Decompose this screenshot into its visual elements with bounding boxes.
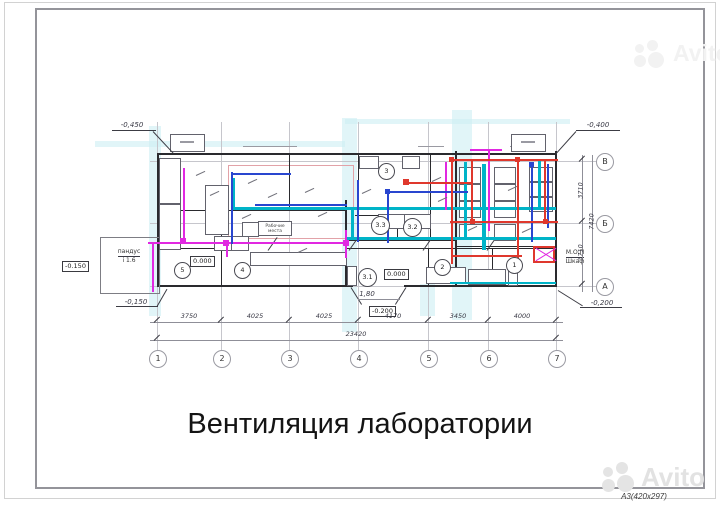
duct-red — [450, 159, 558, 161]
room-circle-3: 3 — [378, 163, 395, 180]
wall-interior — [455, 151, 457, 286]
duct-red — [450, 221, 558, 223]
duct-exhaust — [148, 242, 348, 244]
duct-supply — [482, 164, 486, 250]
level-box-lobby: 0.000 — [384, 269, 409, 280]
wall-interior — [289, 153, 290, 210]
elevation-leader — [112, 130, 156, 131]
mop-label: М.О.П Шкаф — [561, 249, 589, 265]
dim-line-total — [150, 340, 563, 341]
ramp-label: пандус i 1.6 — [104, 248, 154, 264]
damper-node — [385, 189, 390, 194]
room-circle-3-3: 3.3 — [371, 216, 390, 235]
grid-line-row-v — [150, 161, 612, 162]
watermark-top-right: Avito — [634, 36, 720, 70]
room-circle-3-2: 3.2 — [403, 218, 422, 237]
duct-red — [407, 182, 473, 184]
duct-red — [471, 159, 473, 223]
dim-segment-4: 4170 — [368, 313, 418, 320]
grid-highlight-band — [345, 119, 570, 124]
duct-red — [544, 159, 546, 223]
dim-right-segment-2: 3710 — [578, 238, 585, 268]
damper-node — [543, 219, 548, 224]
window-mark — [243, 146, 297, 147]
ramp-label-line2: i 1.6 — [122, 257, 135, 264]
canopy-box — [511, 134, 546, 152]
canopy-box-text-smudge — [521, 141, 535, 143]
dim-line-segments — [150, 322, 563, 323]
duct-red — [517, 159, 519, 264]
duct-supply — [450, 282, 556, 284]
elevation-leader — [116, 306, 158, 307]
damper-node — [529, 162, 534, 167]
ramp-label-line1: пандус — [118, 248, 141, 257]
dim-segment-6: 4000 — [497, 313, 547, 320]
wall-top — [157, 153, 556, 155]
wall-bottom-right — [404, 285, 556, 287]
duct-supply — [538, 160, 541, 208]
grid-highlight-band — [95, 141, 345, 147]
workplaces-line2: места — [268, 229, 282, 234]
cabinet — [159, 158, 181, 204]
dim-segment-2: 4025 — [230, 313, 280, 320]
room-circle-1: 1 — [506, 257, 523, 274]
room-circle-2: 2 — [434, 259, 451, 276]
window-mark — [418, 146, 444, 147]
room-circle-3-1: 3.1 — [358, 268, 377, 287]
damper-node — [515, 157, 520, 162]
ramp-outline — [100, 237, 160, 294]
wall-bottom-left — [157, 285, 353, 287]
watermark-text: Avito — [673, 40, 720, 66]
duct-exhaust — [445, 162, 447, 210]
wall-interior — [157, 210, 345, 211]
dim-segment-1: 3750 — [164, 313, 214, 320]
level-box-hall: 0.000 — [190, 256, 215, 267]
dim-right-segment-1: 3710 — [578, 176, 585, 206]
duct-blue — [255, 204, 347, 206]
damper-node — [343, 240, 349, 246]
lab-table — [494, 167, 516, 184]
axis-bubble-5: 5 — [420, 350, 438, 368]
damper-node — [403, 179, 409, 185]
room-circle-5: 5 — [174, 262, 191, 279]
damper-node — [180, 238, 186, 244]
duct-blue — [388, 191, 468, 193]
ramp-level-box: -0.150 — [62, 261, 89, 272]
duct-exhaust — [183, 168, 185, 242]
furniture-box — [347, 266, 357, 286]
duct-supply — [464, 162, 467, 238]
elevation-leader — [576, 130, 620, 131]
duct-blue — [387, 191, 389, 243]
bench — [250, 252, 347, 266]
axis-bubble-2: 2 — [213, 350, 231, 368]
axis-bubble-7: 7 — [548, 350, 566, 368]
axis-bubble-a: А — [596, 278, 614, 296]
axis-bubble-1: 1 — [149, 350, 167, 368]
dim-total-bottom: 23420 — [331, 331, 381, 338]
furniture-box — [359, 156, 379, 169]
axis-bubble-4: 4 — [350, 350, 368, 368]
duct-exhaust — [152, 243, 154, 292]
elevation-bottom-right: -0,200 — [582, 299, 622, 307]
elevation-top-left: -0,450 — [112, 121, 152, 129]
watermark-bottom-right: Avito — [602, 460, 705, 494]
duct-blue — [231, 173, 291, 175]
elevation-leader — [580, 307, 622, 308]
elevation-bottom-left: -0,150 — [116, 298, 156, 306]
duct-supply — [233, 207, 556, 210]
furniture-box — [402, 156, 420, 169]
axis-bubble-6: 6 — [480, 350, 498, 368]
dim-segment-5: 3450 — [433, 313, 483, 320]
wall-right — [555, 151, 557, 287]
duct-blue — [531, 164, 533, 242]
axis-bubble-b: Б — [596, 215, 614, 233]
duct-blue — [231, 172, 233, 244]
duct-supply — [351, 209, 354, 238]
entry-dim-line — [358, 299, 400, 300]
canopy-box-text-smudge — [180, 141, 194, 143]
duct-red — [451, 159, 453, 264]
furniture-box — [242, 222, 259, 237]
drawing-title: Вентиляция лаборатории — [130, 407, 590, 441]
dim-segment-3: 4025 — [299, 313, 349, 320]
wall-interior — [345, 240, 455, 241]
dim-right-total: 7420 — [589, 207, 596, 237]
damper-node — [449, 157, 454, 162]
axis-bubble-v: В — [596, 153, 614, 171]
damper-node — [223, 240, 229, 246]
avito-logo-icon — [602, 460, 636, 494]
avito-logo-icon — [634, 36, 668, 70]
damper-node — [470, 219, 475, 224]
workplaces-box: Рабочие места — [258, 221, 292, 236]
axis-bubble-3: 3 — [281, 350, 299, 368]
fan-unit-box — [533, 246, 555, 263]
elevation-top-right: -0,400 — [578, 121, 618, 129]
duct-blue — [357, 180, 359, 242]
duct-exhaust — [488, 149, 490, 231]
duct-exhaust — [470, 149, 502, 151]
canopy-box — [170, 134, 205, 152]
watermark-text: Avito — [641, 464, 705, 490]
room-circle-4: 4 — [234, 262, 251, 279]
entry-width-dim: 1,80 — [352, 290, 382, 298]
